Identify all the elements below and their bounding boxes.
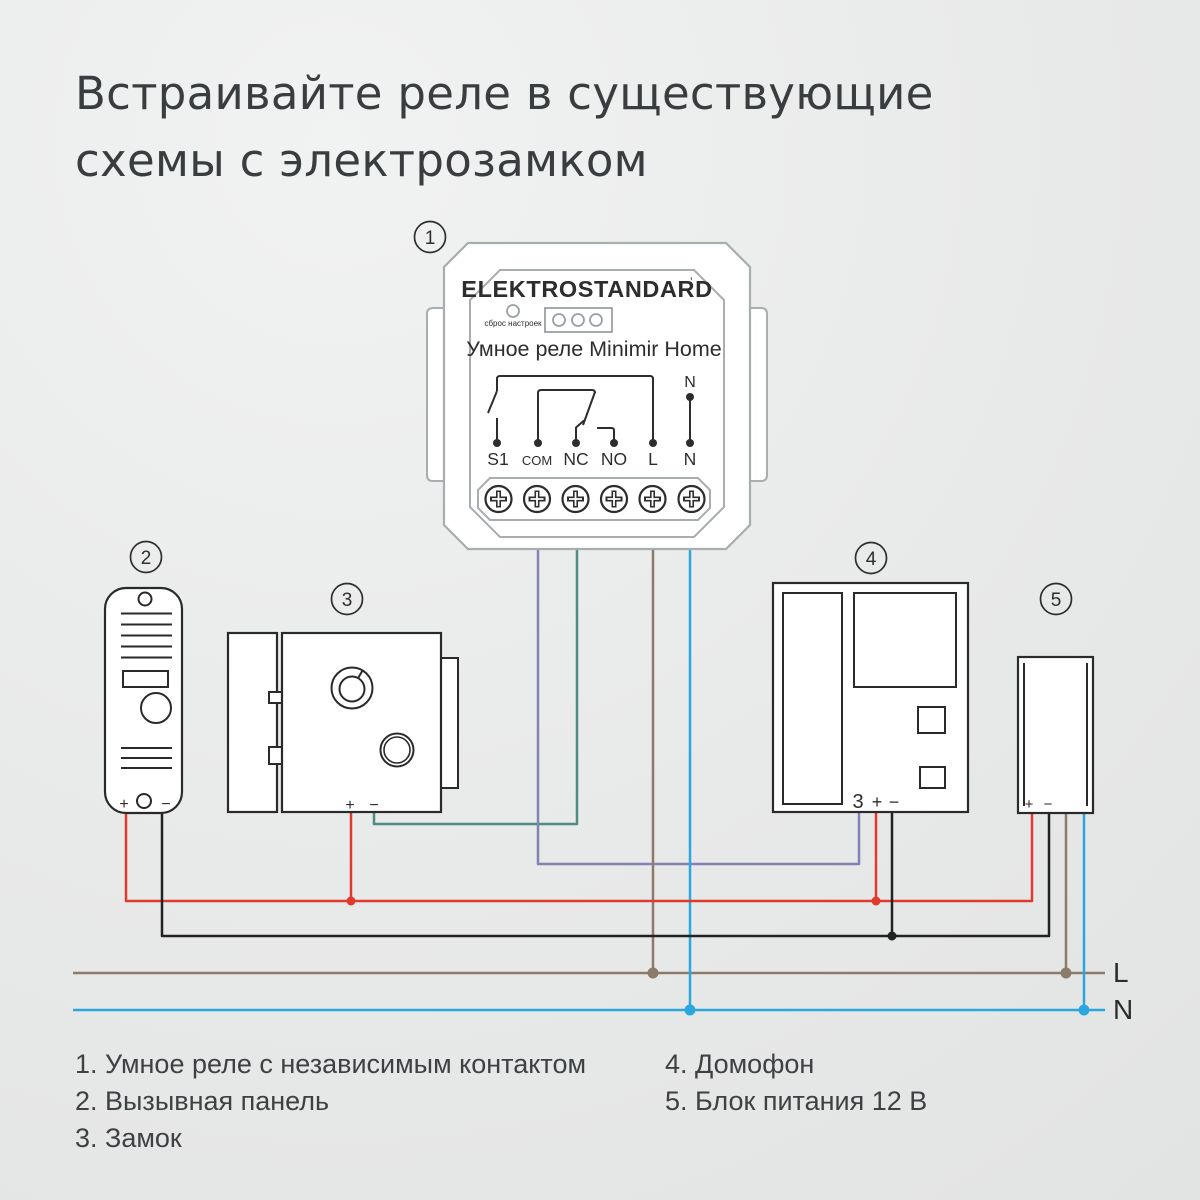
- call-panel: + − 2: [105, 542, 182, 814]
- psu-minus-label: −: [1044, 796, 1053, 813]
- terminal-label-no: NO: [601, 449, 627, 469]
- wire-red-plus-12v: [126, 812, 1032, 901]
- terminal-label-l: L: [648, 449, 658, 469]
- intercom-t3-label: 3: [852, 791, 863, 813]
- intercom-minus-label: −: [889, 792, 900, 812]
- relay-number: 1: [425, 228, 436, 249]
- relay-brand-text: ELEKTROSTANDARD: [461, 276, 712, 302]
- legend-item: 5. Блок питания 12 В: [665, 1083, 927, 1120]
- psu-number: 5: [1051, 590, 1062, 611]
- junction-dot: [1079, 1005, 1090, 1016]
- call-panel-number: 2: [141, 548, 152, 569]
- intercom-body: [773, 583, 968, 812]
- junction-dot: [347, 897, 356, 906]
- junction-dot: [685, 1005, 696, 1016]
- wiring-diagram: L N ELEKTROSTANDARD ’ сброс настроек Умн…: [0, 0, 1200, 1200]
- smart-relay: ELEKTROSTANDARD ’ сброс настроек Умное р…: [415, 222, 768, 550]
- screw-icon: [679, 486, 705, 512]
- bolt-tab: [269, 692, 283, 703]
- screw-icon: [640, 486, 666, 512]
- terminal-label-s1: S1: [487, 449, 508, 469]
- lock-plus-label: +: [345, 797, 354, 814]
- lock-body: [282, 633, 441, 812]
- legend-item: 1. Умное реле с независимым контактом: [75, 1046, 586, 1083]
- call-panel-minus-label: −: [161, 796, 170, 813]
- call-panel-plus-label: +: [119, 796, 128, 813]
- lock-edge-plate: [441, 658, 458, 788]
- power-supply: + − 5: [1018, 584, 1093, 814]
- junction-dot: [1061, 968, 1072, 979]
- legend-item: 4. Домофон: [665, 1046, 927, 1083]
- legend-left: 1. Умное реле с независимым контактом 2.…: [75, 1046, 586, 1157]
- screw-terminal-strip: [478, 478, 710, 520]
- junction-dots: [347, 897, 1090, 1016]
- wire-black-minus-12v: [162, 812, 1049, 936]
- line-l-label: L: [1113, 957, 1129, 988]
- screw-icon: [563, 486, 589, 512]
- legend-right: 4. Домофон 5. Блок питания 12 В: [665, 1046, 927, 1120]
- terminal-label-n: N: [684, 449, 697, 469]
- relay-brand-trademark: ’: [690, 275, 693, 289]
- bolt-tab: [269, 747, 283, 764]
- relay-model-name: Умное реле Minimir Home: [466, 337, 722, 361]
- lock-number: 3: [342, 590, 353, 611]
- psu-plus-label: +: [1025, 796, 1034, 813]
- intercom: 3 + − 4: [773, 543, 968, 814]
- relay-mounting-tab-right: [750, 308, 767, 481]
- lock-minus-label: −: [369, 797, 378, 814]
- intercom-number: 4: [866, 549, 877, 570]
- intercom-plus-label: +: [872, 792, 883, 812]
- screw-icon: [524, 486, 550, 512]
- legend-item: 2. Вызывная панель: [75, 1083, 586, 1120]
- junction-dot: [888, 932, 897, 941]
- strike-plate: [228, 633, 277, 812]
- relay-mounting-tab-left: [427, 308, 444, 481]
- line-n-label: N: [1113, 994, 1133, 1025]
- screw-icon: [601, 486, 627, 512]
- terminal-label-nc: NC: [563, 449, 588, 469]
- junction-dot: [872, 897, 881, 906]
- reset-button-label: сброс настроек: [484, 319, 542, 328]
- junction-dot: [648, 968, 659, 979]
- psu-body: [1018, 657, 1093, 813]
- relay-n-top-label: N: [684, 374, 696, 391]
- legend-item: 3. Замок: [75, 1120, 586, 1157]
- lock: + − 3: [228, 584, 458, 815]
- terminal-label-com: COM: [522, 453, 552, 468]
- screw-icon: [486, 486, 512, 512]
